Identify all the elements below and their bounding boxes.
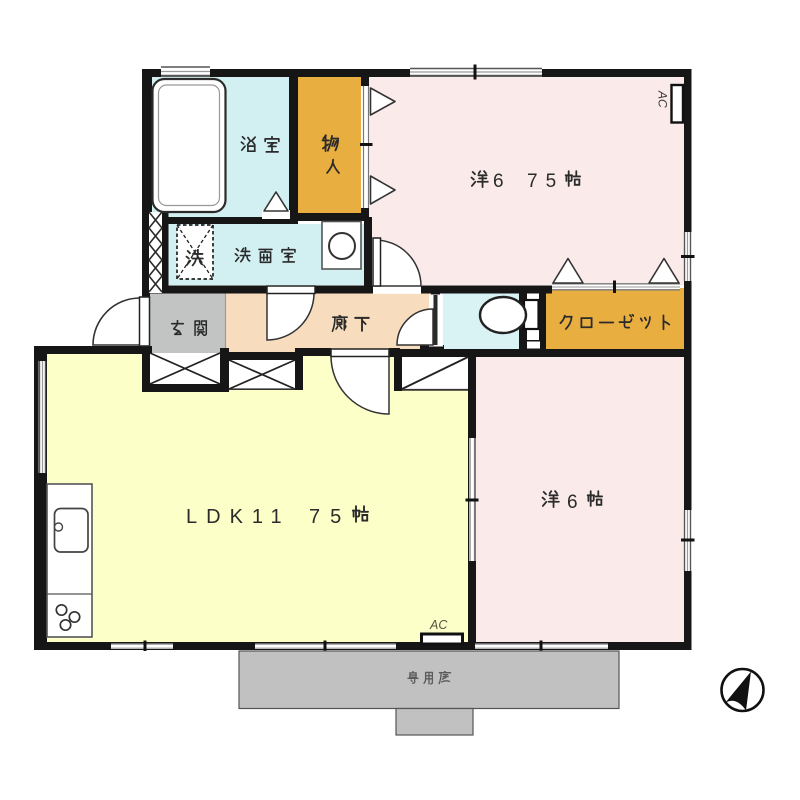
svg-text:LDK11: LDK11 xyxy=(186,506,291,528)
svg-text:AC: AC xyxy=(656,90,670,108)
svg-text:6: 6 xyxy=(567,492,578,513)
svg-text:75: 75 xyxy=(527,171,564,192)
svg-text:AC: AC xyxy=(429,618,448,632)
svg-text:75: 75 xyxy=(309,506,351,528)
svg-text:6: 6 xyxy=(493,171,504,192)
